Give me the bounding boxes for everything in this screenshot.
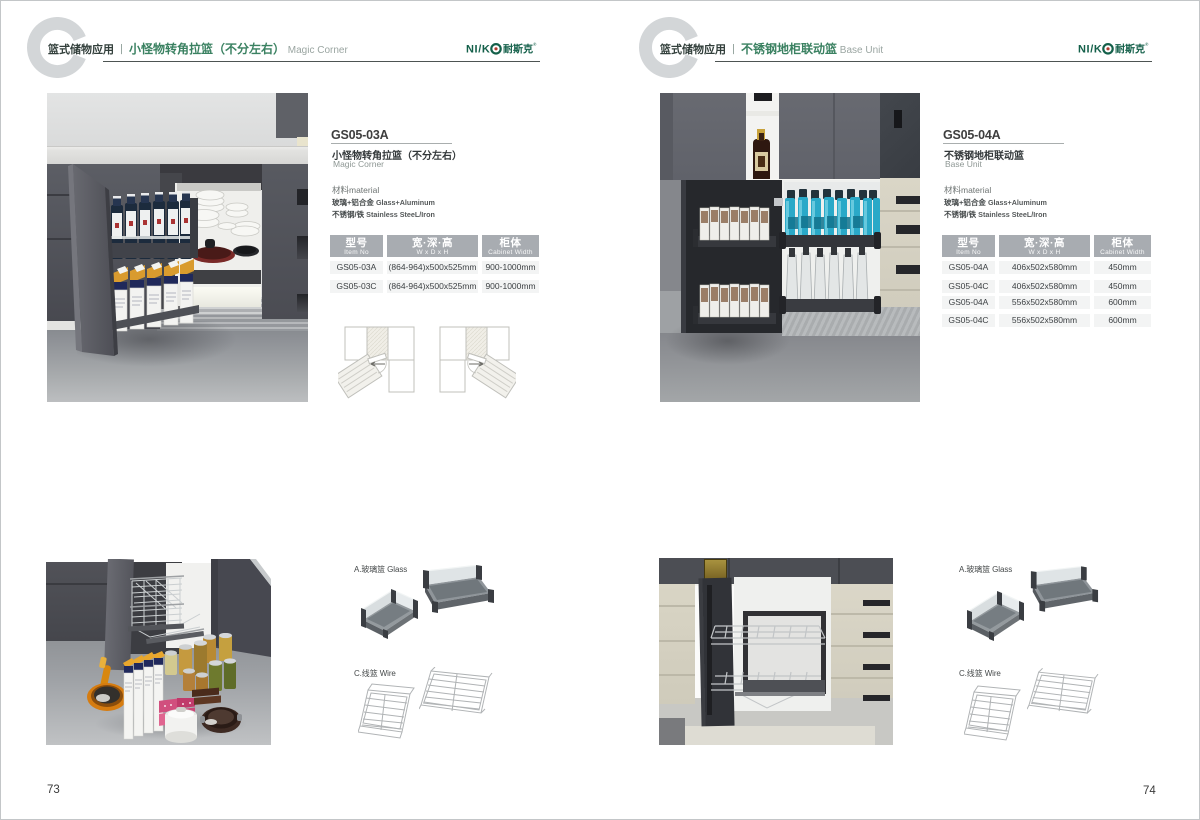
svg-text:耐斯克: 耐斯克 (1115, 43, 1145, 56)
svg-text:®: ® (533, 41, 537, 47)
svg-text:耐斯克: 耐斯克 (503, 43, 533, 56)
svg-text:NI/K: NI/K (466, 44, 490, 56)
svg-text:NI/K: NI/K (1078, 44, 1102, 56)
svg-text:®: ® (1145, 41, 1149, 47)
